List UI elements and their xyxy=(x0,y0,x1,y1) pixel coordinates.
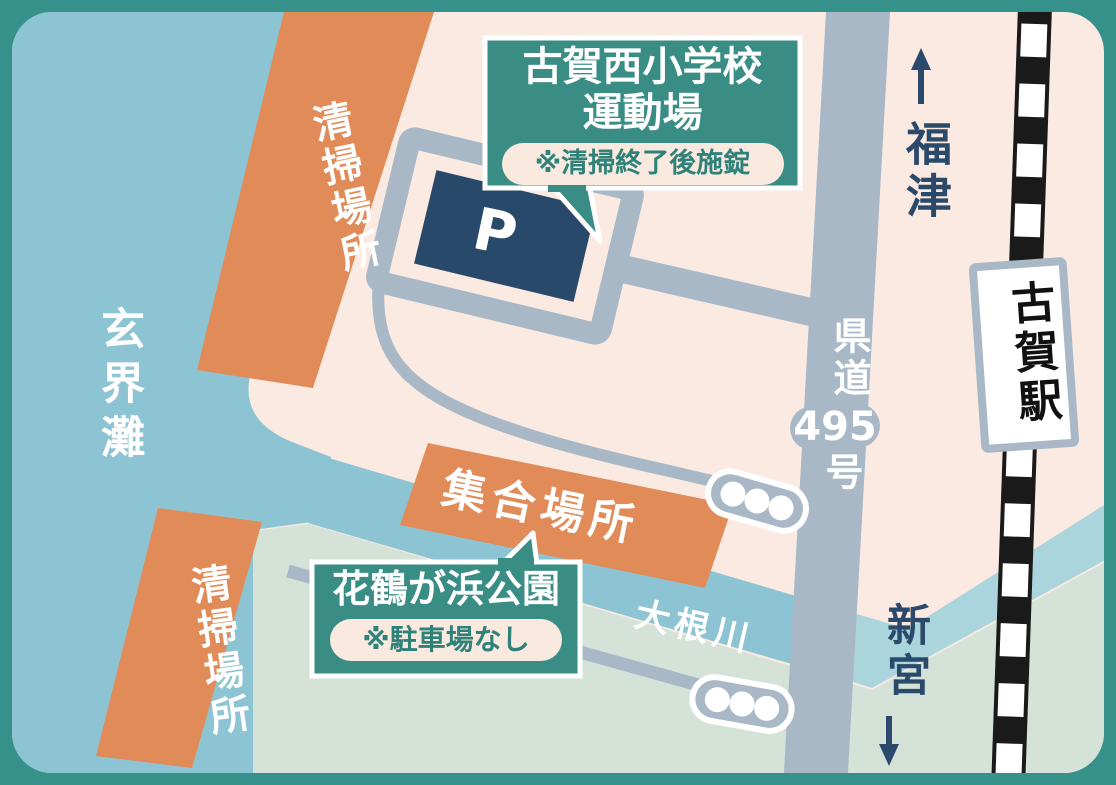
route-number-bulge xyxy=(789,403,881,452)
map-canvas xyxy=(0,0,1116,785)
station-sign xyxy=(973,261,1075,449)
map-frame: 玄界灘 清掃場所 清掃場所 集合場所 P 大根川 県道 495 号 福津 新宮 … xyxy=(0,0,1116,785)
